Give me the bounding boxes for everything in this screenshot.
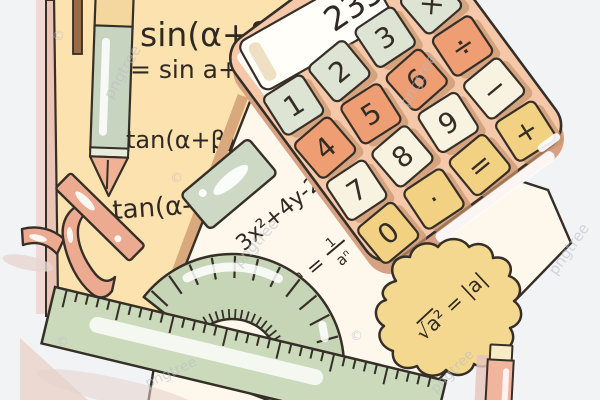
copyright-mark: © [52, 29, 65, 44]
math-clipart-scene: sin(α+β) = sin a+ cos tan(α+β)= t tan(α-… [0, 0, 600, 400]
copyright-mark: © [170, 171, 183, 186]
brown-stick [73, 0, 82, 54]
pencil-cap [95, 0, 134, 29]
chalk-body [484, 359, 513, 400]
copyright-mark: © [350, 329, 363, 344]
illustration-stage: sin(α+β) = sin a+ cos tan(α+β)= t tan(α-… [0, 0, 600, 400]
pencil-tip-line [107, 160, 108, 189]
copyright-mark: © [56, 335, 69, 350]
